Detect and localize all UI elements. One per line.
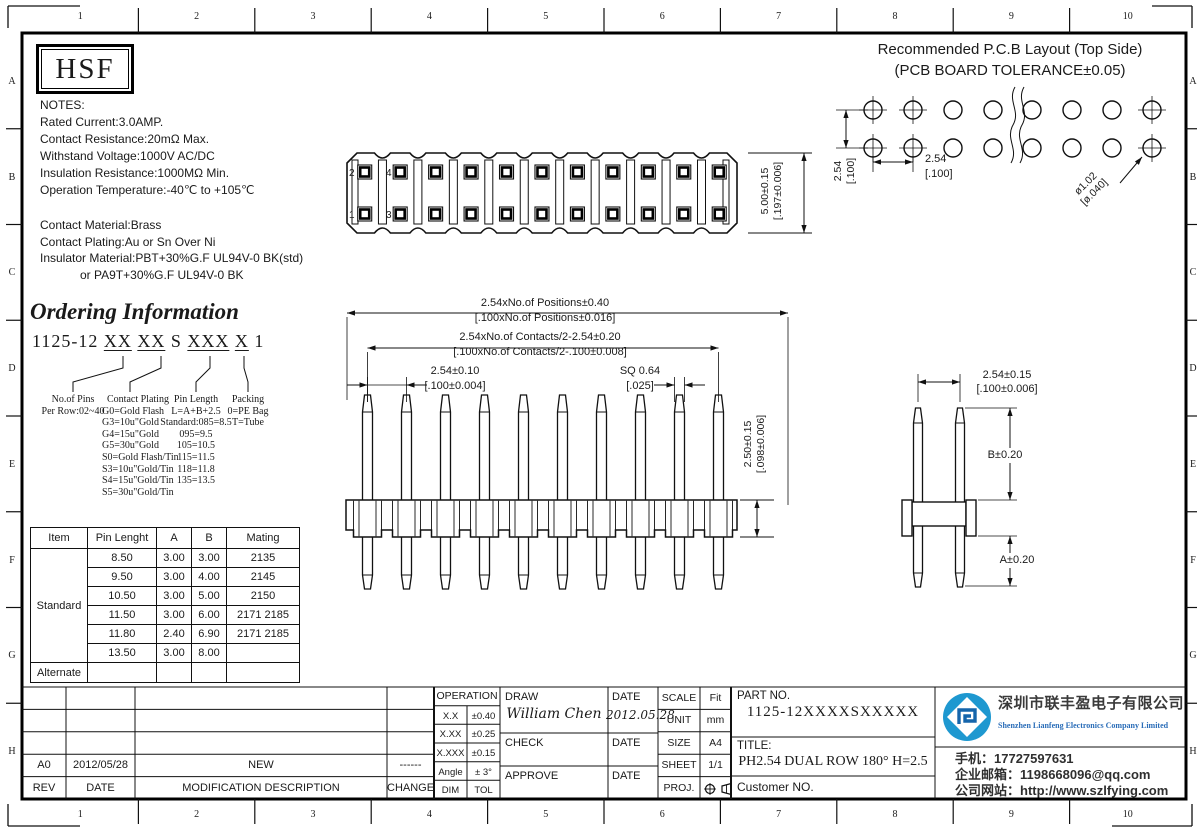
- spec-cell: 4.00: [192, 568, 227, 587]
- approve-label: APPROVE: [505, 769, 558, 784]
- border-col-label: 6: [647, 9, 677, 24]
- border-row-label: A: [4, 74, 20, 89]
- draw-name: William Chen: [500, 707, 608, 722]
- part-seg-packing: X: [235, 331, 249, 351]
- ordering-title: Ordering Information: [30, 304, 239, 319]
- dim-mm: 2.54: [925, 153, 946, 165]
- dim-mm: 2.54±0.10: [431, 365, 480, 377]
- tolerance-label: X.XX: [434, 727, 467, 742]
- note-line: or PA9T+30%G.F UL94V-0 BK: [40, 268, 244, 283]
- company-name-cn: 深圳市联丰盈电子有限公司: [998, 696, 1182, 711]
- spec-cell: 8.00: [192, 644, 227, 663]
- border-col-label: 1: [65, 9, 95, 24]
- pcb-title-line1: Recommended P.C.B Layout (Top Side): [830, 42, 1190, 57]
- part-seg: 1: [249, 331, 265, 351]
- tolerance-label: X.X: [434, 709, 467, 724]
- spec-cell: 3.00: [157, 549, 192, 568]
- revision-cell: REV: [22, 781, 66, 796]
- border-row-label: C: [4, 265, 20, 280]
- spec-cell: 3.00: [157, 587, 192, 606]
- info-label: UNIT: [658, 713, 700, 728]
- spec-cell: 6.00: [192, 606, 227, 625]
- tolerance-label: Angle: [434, 765, 467, 780]
- dim-mm: 2.54xNo.of Contacts/2-2.54±0.20: [459, 331, 620, 343]
- company-logo-icon: [940, 690, 994, 744]
- note-line: Operation Temperature:-40℃ to +105℃: [40, 183, 255, 198]
- border-row-label: A: [1187, 74, 1199, 89]
- border-row-label: D: [1187, 361, 1199, 376]
- spec-header-cell: A: [157, 528, 192, 549]
- border-row-label: D: [4, 361, 20, 376]
- spec-item-cell: Standard: [31, 549, 88, 663]
- side-b-dim-text: B±0.20: [975, 448, 1035, 463]
- tolerance-value: ± 3°: [467, 765, 500, 780]
- revision-cell: NEW: [135, 758, 387, 773]
- spec-cell: 2150: [227, 587, 300, 606]
- dim-inch: [.098±0.006]: [755, 415, 767, 473]
- spec-cell: 8.50: [88, 549, 157, 568]
- note-line: Contact Plating:Au or Sn Over Ni: [40, 235, 215, 250]
- draw-label: DRAW: [505, 690, 538, 705]
- info-label: SCALE: [658, 691, 700, 706]
- border-col-label: 3: [298, 9, 328, 24]
- ordering-col-line: T=Tube: [222, 415, 274, 430]
- spec-cell: 13.50: [88, 644, 157, 663]
- company-phone: 手机：17727597631: [955, 751, 1180, 766]
- dim-inch: [.100]: [845, 158, 857, 184]
- revision-cell: 2012/05/28: [66, 758, 135, 773]
- border-col-label: 10: [1113, 807, 1143, 822]
- spec-cell: 2135: [227, 549, 300, 568]
- part-seg-length: XXX: [187, 331, 229, 351]
- tolerance-value: ±0.40: [467, 709, 500, 724]
- contacts-dim-text: 2.54xNo.of Contacts/2-2.54±0.20[.100xNo.…: [390, 330, 690, 360]
- note-line: Insulator Material:PBT+30%G.F UL94V-0 BK…: [40, 251, 303, 266]
- approve-date-label: DATE: [612, 769, 641, 784]
- operation-header: OPERATION: [434, 689, 500, 704]
- spec-cell: [192, 663, 227, 683]
- spec-cell: 3.00: [157, 568, 192, 587]
- dim-inch: [.197±0.006]: [772, 162, 784, 220]
- spec-table: ItemPin LenghtABMatingStandard8.503.003.…: [30, 527, 300, 683]
- tolerance-value: TOL: [467, 783, 500, 798]
- company-website: 公司网站：http://www.szlfying.com: [955, 783, 1180, 798]
- revision-cell: A0: [22, 758, 66, 773]
- projection-symbol-icon: [702, 781, 732, 797]
- spec-item-cell: Alternate: [31, 663, 88, 683]
- border-col-label: 8: [880, 807, 910, 822]
- dim-inch: [.100]: [925, 168, 953, 180]
- border-col-label: 5: [531, 9, 561, 24]
- part-seg: S: [165, 331, 187, 351]
- side-pitch-dim-text: 2.54±0.15[.100±0.006]: [965, 368, 1049, 396]
- spec-header-row: ItemPin LenghtABMating: [31, 528, 300, 549]
- dim-mm: 2.54±0.15: [983, 369, 1032, 381]
- pcb-pitch-v-text: 2.54[.100]: [832, 149, 858, 193]
- ordering-col-line: 135=13.5: [148, 473, 244, 488]
- note-line: NOTES:: [40, 98, 85, 113]
- pin-number-label: 1: [349, 208, 355, 223]
- revision-cell: DATE: [66, 781, 135, 796]
- hsf-logo-inner-border: HSF: [41, 49, 129, 89]
- note-line: Rated Current:3.0AMP.: [40, 115, 163, 130]
- spec-cell: 3.00: [192, 549, 227, 568]
- border-col-label: 7: [764, 9, 794, 24]
- tolerance-label: X.XXX: [434, 746, 467, 761]
- draw-date: 2012.05.28: [606, 708, 660, 723]
- customer-no-label: Customer NO.: [737, 780, 814, 795]
- dim-mm: 2.50±0.15: [742, 421, 754, 468]
- note-line: Withstand Voltage:1000V AC/DC: [40, 149, 215, 164]
- front-height-dim-text: 2.50±0.15[.098±0.006]: [742, 401, 768, 487]
- border-col-label: 9: [996, 807, 1026, 822]
- info-label: SHEET: [658, 758, 700, 773]
- note-line: Contact Resistance:20mΩ Max.: [40, 132, 209, 147]
- tolerance-value: ±0.15: [467, 746, 500, 761]
- spec-cell: 2171 2185: [227, 606, 300, 625]
- dim-inch: [.100xNo.of Contacts/2-.100±0.008]: [453, 346, 627, 358]
- border-col-label: 4: [414, 807, 444, 822]
- pin-number-label: 2: [349, 166, 355, 181]
- pcb-pitch-h-text: 2.54[.100]: [925, 152, 971, 182]
- dim-mm: SQ 0.64: [620, 365, 660, 377]
- spec-cell: 11.80: [88, 625, 157, 644]
- ordering-part-number: 1125-12 XX XX S XXX X 1: [32, 334, 264, 349]
- info-label: SIZE: [658, 736, 700, 751]
- spec-cell: [88, 663, 157, 683]
- spec-cell: 2.40: [157, 625, 192, 644]
- border-col-label: 5: [531, 807, 561, 822]
- revision-cell: ------: [387, 758, 434, 773]
- dim-inch: [.100xNo.of Positions±0.016]: [475, 312, 616, 324]
- spec-cell: 5.00: [192, 587, 227, 606]
- spec-cell: 2171 2185: [227, 625, 300, 644]
- spec-cell: 11.50: [88, 606, 157, 625]
- dim-inch: [.100±0.006]: [976, 383, 1037, 395]
- spec-header-cell: Pin Lenght: [88, 528, 157, 549]
- side-a-dim-text: A±0.20: [987, 553, 1047, 568]
- spec-cell: 3.00: [157, 606, 192, 625]
- title-label: TITLE:: [737, 739, 772, 754]
- border-col-label: 1: [65, 807, 95, 822]
- hsf-logo-box: HSF: [36, 44, 134, 94]
- border-col-label: 10: [1113, 9, 1143, 24]
- note-line: Insulation Resistance:1000MΩ Min.: [40, 166, 229, 181]
- spec-header-cell: Item: [31, 528, 88, 549]
- border-row-label: F: [4, 553, 20, 568]
- note-line: Contact Material:Brass: [40, 218, 161, 233]
- check-date-label: DATE: [612, 736, 641, 751]
- revision-cell: MODIFICATION DESCRIPTION: [135, 781, 387, 796]
- engineering-drawing-sheet: { "colors": {"ink":"#1a1a1a","accent_blu…: [0, 0, 1200, 832]
- pin-number-label: 4: [386, 166, 392, 181]
- dim-inch: [.025]: [626, 380, 654, 392]
- border-col-label: 9: [996, 9, 1026, 24]
- spec-cell: 3.00: [157, 644, 192, 663]
- spec-cell: 9.50: [88, 568, 157, 587]
- border-col-label: 2: [182, 9, 212, 24]
- spec-alternate-row: Alternate: [31, 663, 300, 683]
- border-col-label: 4: [414, 9, 444, 24]
- border-row-label: E: [4, 457, 20, 472]
- border-col-label: 7: [764, 807, 794, 822]
- border-col-label: 6: [647, 807, 677, 822]
- dim-inch: [.100±0.004]: [424, 380, 485, 392]
- spec-cell: [227, 663, 300, 683]
- part-seg-pins: XX: [104, 331, 132, 351]
- pcb-layout-drawing: [828, 83, 1183, 233]
- border-row-label: E: [1187, 457, 1199, 472]
- pin-number-label: 3: [386, 208, 392, 223]
- title-value: PH2.54 DUAL ROW 180° H=2.5: [731, 754, 935, 769]
- spec-row: Standard8.503.003.002135: [31, 549, 300, 568]
- dim-mm: 2.54xNo.of Positions±0.40: [481, 297, 609, 309]
- company-name-en: Shenzhen Lianfeng Electronics Company Li…: [998, 718, 1184, 733]
- border-row-label: H: [1187, 744, 1199, 759]
- dim-mm: 2.54: [832, 161, 844, 181]
- info-value: A4: [700, 736, 731, 751]
- part-seg-plating: XX: [137, 331, 165, 351]
- border-row-label: G: [1187, 648, 1199, 663]
- part-no-label: PART NO.: [737, 689, 790, 704]
- info-value: 1/1: [700, 758, 731, 773]
- tolerance-value: ±0.25: [467, 727, 500, 742]
- connector-top-view: [343, 138, 743, 250]
- proj-label: PROJ.: [658, 781, 700, 796]
- pcb-title-line2: (PCB BOARD TOLERANCE±0.05): [830, 63, 1190, 78]
- spec-cell: [157, 663, 192, 683]
- dim-mm: 5.00±0.15: [759, 168, 771, 215]
- check-label: CHECK: [505, 736, 544, 751]
- hsf-logo-text: HSF: [55, 53, 114, 86]
- border-row-label: C: [1187, 265, 1199, 280]
- tolerance-label: DIM: [434, 783, 467, 798]
- positions-dim-text: 2.54xNo.of Positions±0.40[.100xNo.of Pos…: [395, 296, 695, 326]
- spec-cell: 2145: [227, 568, 300, 587]
- spec-header-cell: B: [192, 528, 227, 549]
- info-value: Fit: [700, 691, 731, 706]
- revision-cell: CHANGE: [387, 781, 434, 796]
- sq-dim-text: SQ 0.64[.025]: [600, 364, 680, 394]
- border-row-label: G: [4, 648, 20, 663]
- border-col-label: 8: [880, 9, 910, 24]
- company-email: 企业邮箱：1198668096@qq.com: [955, 767, 1180, 782]
- spec-cell: [227, 644, 300, 663]
- pitch-dim-text: 2.54±0.10[.100±0.004]: [405, 364, 505, 394]
- spec-cell: 6.90: [192, 625, 227, 644]
- border-row-label: F: [1187, 553, 1199, 568]
- border-row-label: B: [1187, 170, 1199, 185]
- part-no-value: 1125-12XXXXSXXXXX: [731, 705, 935, 720]
- draw-date-label: DATE: [612, 690, 641, 705]
- spec-cell: 10.50: [88, 587, 157, 606]
- info-value: mm: [700, 713, 731, 728]
- part-seg: 1125-12: [32, 331, 104, 351]
- border-col-label: 2: [182, 807, 212, 822]
- spec-header-cell: Mating: [227, 528, 300, 549]
- border-row-label: B: [4, 170, 20, 185]
- top-view-height-dim-text: 5.00±0.15[.197±0.006]: [759, 148, 785, 234]
- border-row-label: H: [4, 744, 20, 759]
- border-col-label: 3: [298, 807, 328, 822]
